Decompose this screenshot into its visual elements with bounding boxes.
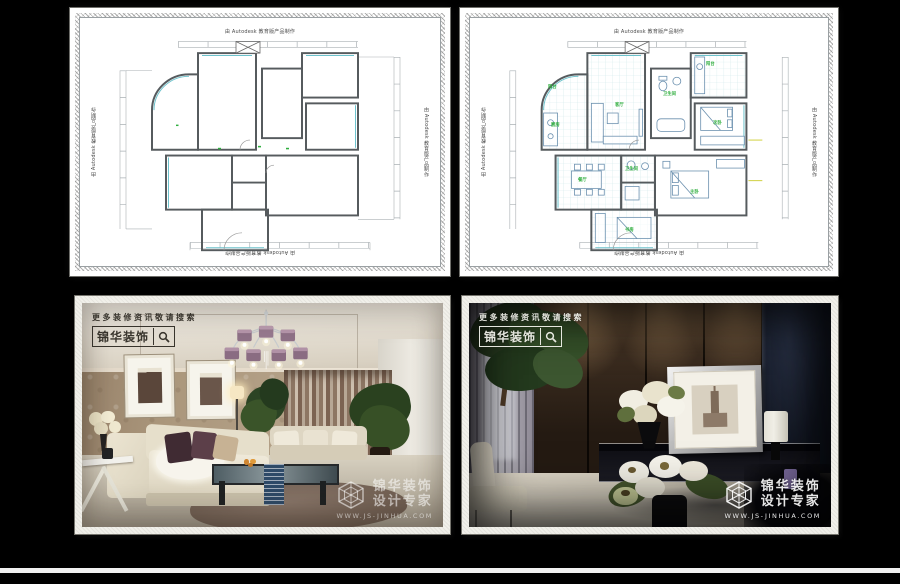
autodesk-stamp-bottom: 由 Autodesk 教育版产品制作 [614,249,684,256]
photo-living-room: 更多装修资讯敬请搜索 锦华装饰 锦华装饰 设计专家 [82,303,443,527]
cad-sheet-furnished-plan: 由 Autodesk 教育版产品制作 由 Autodesk 教育版产品制作 由 … [460,8,838,276]
autodesk-stamp-right: 由 Autodesk 教育版产品制作 [423,107,430,177]
room-label-bathroom-2: 卫生间 [625,165,638,171]
watermark-search-box: 锦华装饰 [92,326,175,347]
watermark-logo-name: 锦华装饰 [373,480,433,495]
autodesk-stamp-bottom: 由 Autodesk 教育版产品制作 [225,249,295,256]
watermark-box-divider [153,328,154,345]
floor-plan-furnished-drawing [480,28,818,256]
watermark-logo-tagline: 设计专家 [373,495,433,510]
room-label-living: 客厅 [615,101,624,107]
room-label-bathroom: 卫生间 [663,90,676,96]
collage-canvas: 由 Autodesk 教育版产品制作 由 Autodesk 教育版产品制作 由 … [0,0,900,584]
watermark-search-box: 锦华装饰 [479,326,562,347]
watermark-box-divider [540,328,541,345]
sheet-drawing-area: 由 Autodesk 教育版产品制作 由 Autodesk 教育版产品制作 由 … [469,17,829,267]
watermark-search: 更多装修资讯敬请搜索 锦华装饰 [479,312,584,347]
floor-plan-original-drawing [90,28,430,256]
autodesk-stamp-right: 由 Autodesk 教育版产品制作 [811,107,818,177]
watermark-brand: 锦华装饰 [97,328,149,345]
autodesk-stamp-top: 由 Autodesk 教育版产品制作 [614,28,684,35]
magnifier-icon [545,331,557,343]
bottom-divider-line [0,568,900,573]
floor-plan-furnished: 由 Autodesk 教育版产品制作 由 Autodesk 教育版产品制作 由 … [480,28,818,256]
floor-plan-original: 由 Autodesk 教育版产品制作 由 Autodesk 教育版产品制作 由 … [90,28,430,256]
jinhua-hexagon-logo-icon [724,480,754,510]
watermark-logo-text: 锦华装饰 设计专家 [373,480,433,509]
photo-console-vignette: 更多装修资讯敬请搜索 锦华装饰 锦华装饰 设计专家 [469,303,831,527]
watermark-search: 更多装修资讯敬请搜索 锦华装饰 [92,312,197,347]
watermark-logo-name: 锦华装饰 [761,480,821,495]
room-label-dining: 餐厅 [578,176,587,182]
watermark-logo-tagline: 设计专家 [761,495,821,510]
photo-living-room-frame: 更多装修资讯敬请搜索 锦华装饰 锦华装饰 设计专家 [75,296,450,534]
watermark-search-hint: 更多装修资讯敬请搜索 [92,312,197,323]
room-label-study: 书房 [625,226,634,232]
watermark-website: WWW.JS-JINHUA.COM [336,512,433,520]
room-label-balcony: 阳台 [548,83,557,89]
autodesk-stamp-left: 由 Autodesk 教育版产品制作 [480,107,487,177]
room-label-second-bedroom: 次卧 [713,119,722,125]
watermark-search-hint: 更多装修资讯敬请搜索 [479,312,584,323]
cad-sheet-original-plan: 由 Autodesk 教育版产品制作 由 Autodesk 教育版产品制作 由 … [70,8,450,276]
watermark-logo-text: 锦华装饰 设计专家 [761,480,821,509]
room-label-master-bedroom: 主卧 [690,188,699,194]
watermark-brand: 锦华装饰 [484,328,536,345]
autodesk-stamp-left: 由 Autodesk 教育版产品制作 [90,107,97,177]
watermark-logo: 锦华装饰 设计专家 WWW.JS-JINHUA.COM [336,480,433,520]
sheet-drawing-area: 由 Autodesk 教育版产品制作 由 Autodesk 教育版产品制作 由 … [79,17,441,267]
autodesk-stamp-top: 由 Autodesk 教育版产品制作 [225,28,295,35]
jinhua-hexagon-logo-icon [336,480,366,510]
room-label-kitchen: 厨房 [551,121,560,127]
magnifier-icon [158,331,170,343]
photo-console-frame: 更多装修资讯敬请搜索 锦华装饰 锦华装饰 设计专家 [462,296,838,534]
room-label-balcony-2: 阳台 [706,60,715,66]
watermark-logo: 锦华装饰 设计专家 WWW.JS-JINHUA.COM [724,480,821,520]
watermark-website: WWW.JS-JINHUA.COM [724,512,821,520]
